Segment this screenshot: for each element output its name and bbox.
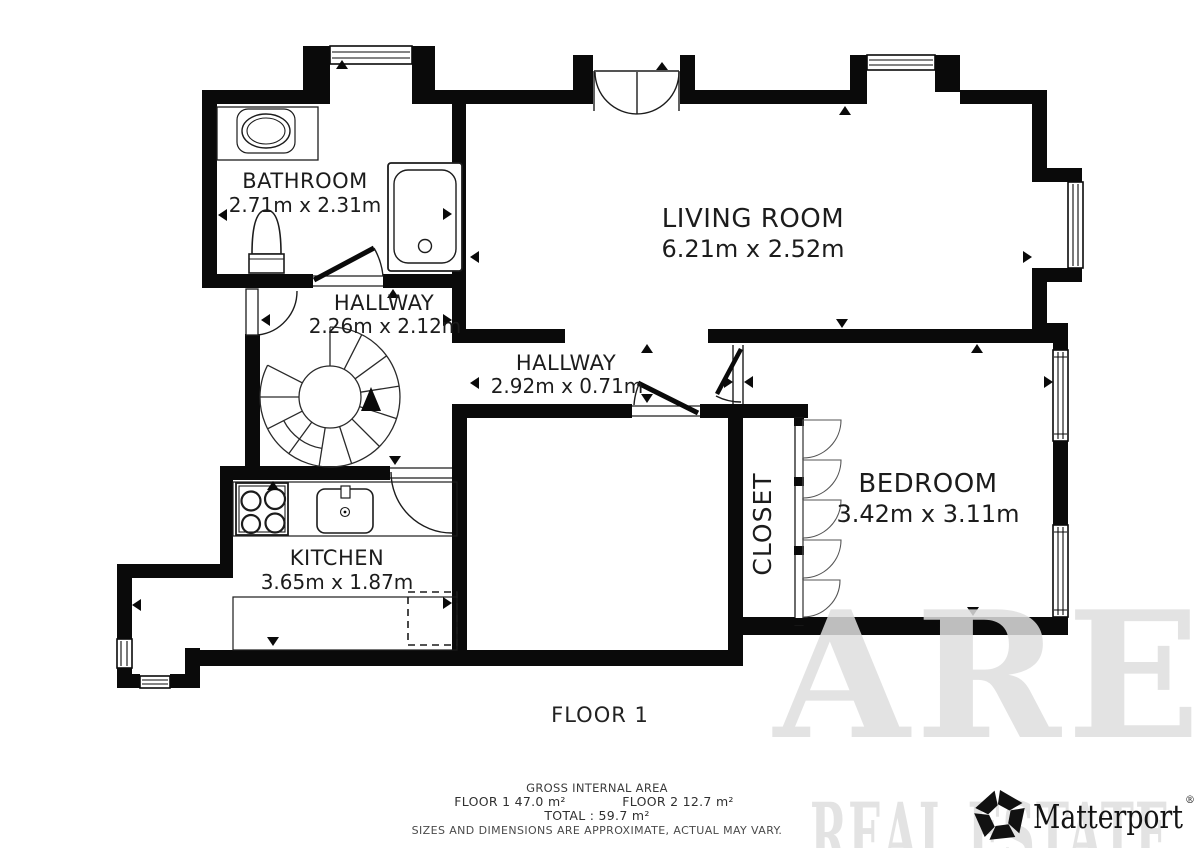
watermark-line1: ARE	[772, 574, 1200, 779]
bathroom-door	[313, 248, 383, 288]
bedroom-label: BEDROOM	[858, 469, 997, 499]
sink-vanity-icon	[217, 107, 318, 160]
floorplan-page: BATHROOM 2.71m x 2.31m LIVING ROOM 6.21m…	[0, 0, 1200, 848]
spiral-staircase	[260, 327, 400, 467]
kitchen-sink-icon	[317, 486, 373, 533]
kitchen-door	[390, 466, 452, 533]
kitchen-dims: 3.65m x 1.87m	[261, 570, 414, 594]
living-room-double-door	[594, 71, 679, 114]
hallway-upper-label: HALLWAY	[334, 291, 434, 315]
toilet-icon	[249, 210, 284, 273]
gross-area-title: GROSS INTERNAL AREA	[526, 781, 668, 795]
bedroom-dims: 3.42m x 3.11m	[836, 500, 1019, 528]
registered-trademark: ®	[1185, 795, 1195, 806]
living-room-dims: 6.21m x 2.52m	[661, 235, 844, 263]
bathroom-dims: 2.71m x 2.31m	[229, 193, 382, 217]
bedroom-door	[716, 345, 743, 404]
hallway-lower-dims: 2.92m x 0.71m	[491, 374, 644, 398]
disclaimer: SIZES AND DIMENSIONS ARE APPROXIMATE, AC…	[412, 824, 783, 837]
area-summary: GROSS INTERNAL AREA FLOOR 1 47.0 m² FLOO…	[412, 781, 783, 837]
closet-label: CLOSET	[748, 472, 777, 575]
floor1-area: FLOOR 1 47.0 m²	[454, 794, 565, 809]
matterport-wordmark: Matterport	[1033, 797, 1183, 836]
stairs-up-arrow-icon	[361, 387, 381, 411]
floor2-area: FLOOR 2 12.7 m²	[622, 794, 733, 809]
living-room-bay-window	[1068, 182, 1083, 268]
hallway-upper-dims: 2.26m x 2.12m	[309, 314, 462, 338]
kitchen-label: KITCHEN	[290, 546, 385, 570]
entry-door	[246, 289, 297, 335]
living-room-label: LIVING ROOM	[662, 204, 844, 234]
bathtub-icon	[388, 163, 462, 271]
bedroom-window-upper	[1053, 350, 1068, 441]
kitchen-island	[233, 597, 457, 650]
hallway-lower-label: HALLWAY	[516, 351, 616, 375]
kitchen-side-window	[117, 639, 132, 668]
total-area: TOTAL : 59.7 m²	[543, 808, 649, 823]
floor-title: FLOOR 1	[551, 703, 649, 727]
stove-icon	[236, 483, 288, 535]
bathroom-label: BATHROOM	[242, 169, 368, 193]
appliance-dashed-outline	[408, 592, 457, 645]
living-room-top-window	[867, 55, 935, 70]
floorplan-canvas: BATHROOM 2.71m x 2.31m LIVING ROOM 6.21m…	[0, 0, 1200, 848]
kitchen-bottom-window	[140, 676, 170, 688]
